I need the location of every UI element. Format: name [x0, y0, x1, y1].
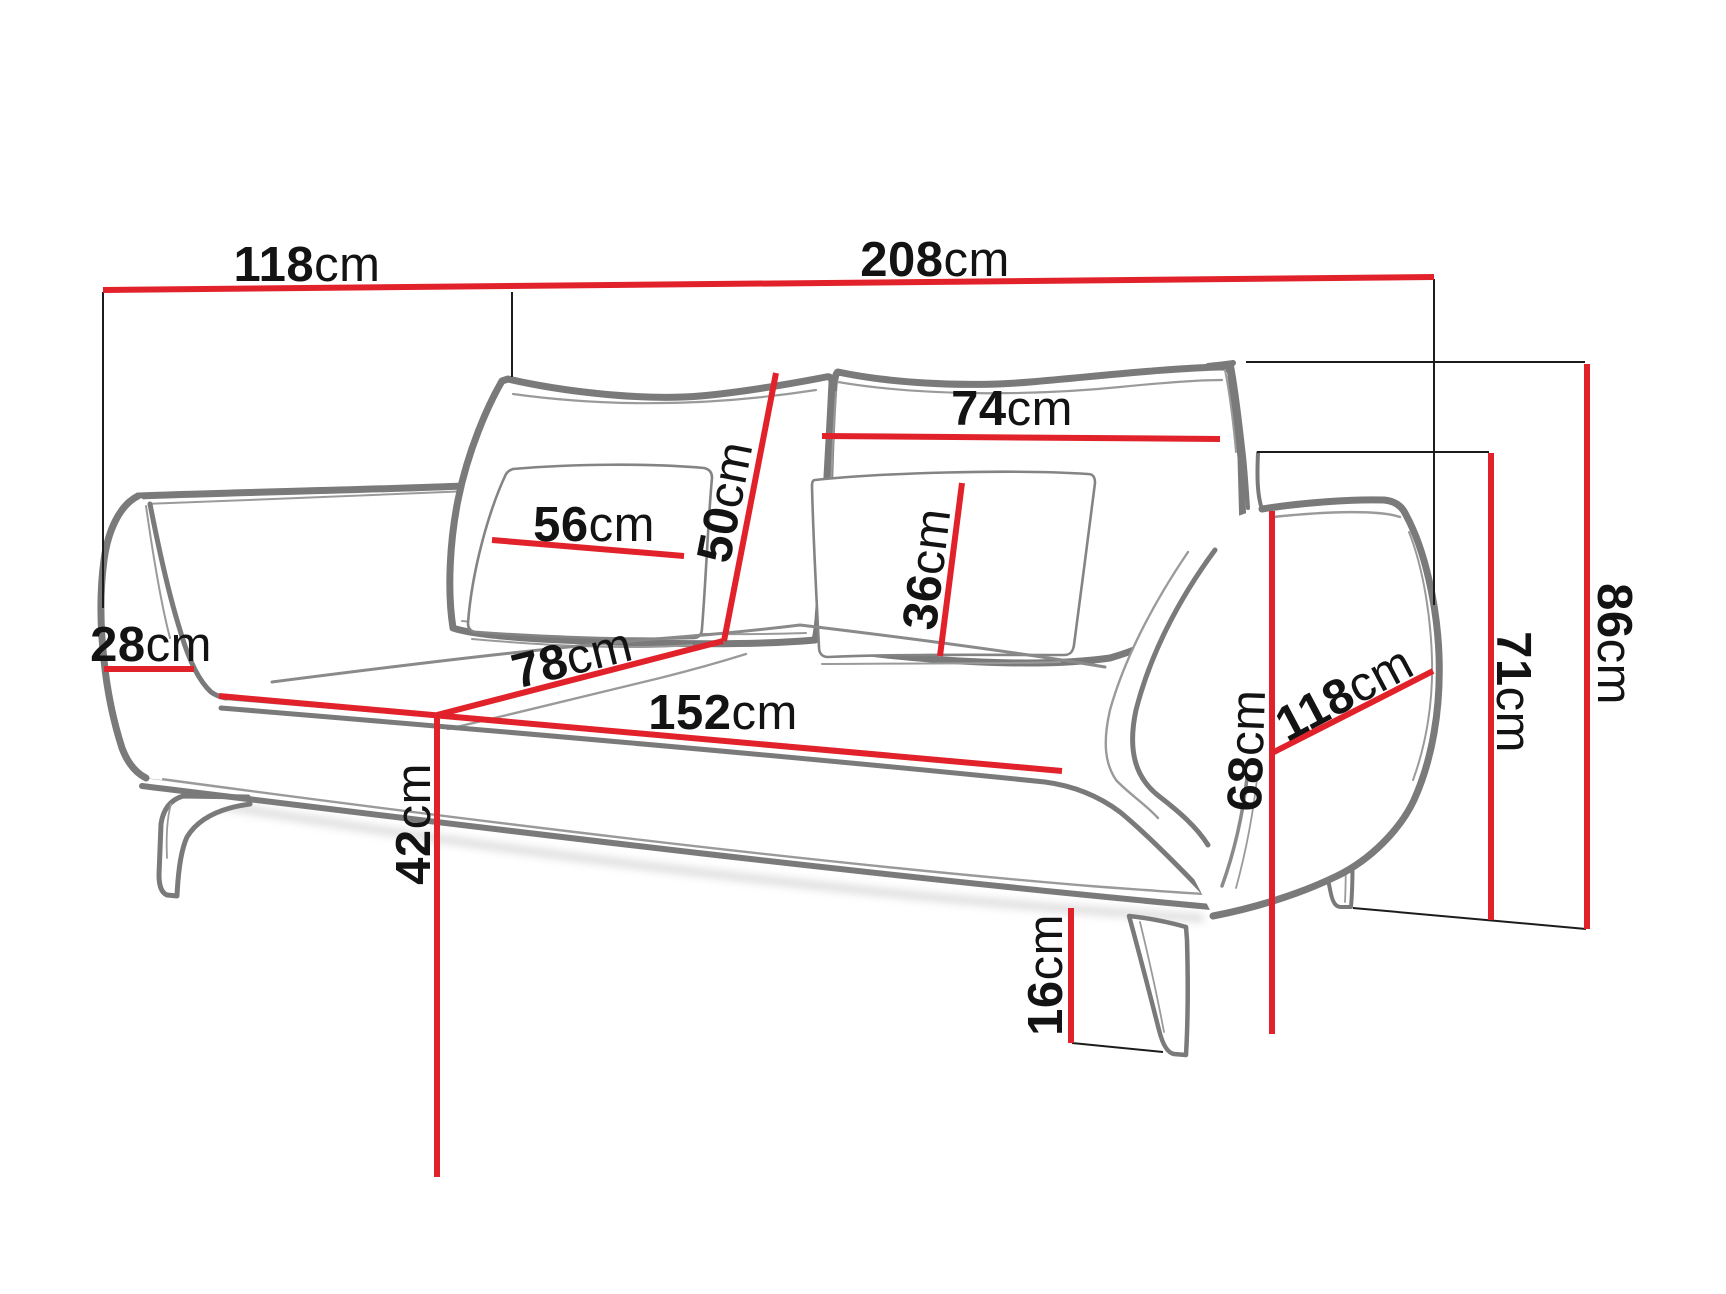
- svg-text:86cm: 86cm: [1587, 583, 1641, 705]
- svg-text:68cm: 68cm: [1218, 689, 1276, 813]
- svg-text:74cm: 74cm: [951, 382, 1073, 436]
- svg-text:208cm: 208cm: [860, 233, 1010, 287]
- svg-text:42cm: 42cm: [387, 763, 441, 885]
- svg-text:16cm: 16cm: [1019, 914, 1073, 1036]
- svg-text:56cm: 56cm: [533, 498, 655, 552]
- svg-text:28cm: 28cm: [90, 618, 212, 672]
- svg-text:71cm: 71cm: [1486, 631, 1540, 753]
- svg-text:152cm: 152cm: [648, 686, 798, 740]
- svg-text:118cm: 118cm: [234, 238, 381, 292]
